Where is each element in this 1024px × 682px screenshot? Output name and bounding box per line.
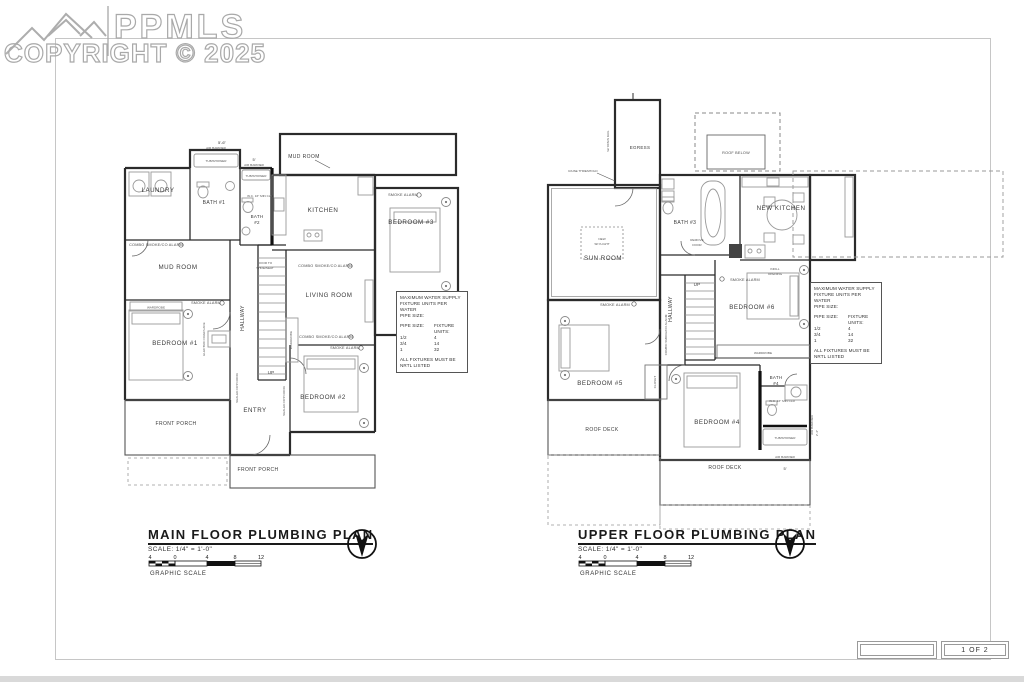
room-label-bedroom3: BEDROOM #3	[388, 219, 434, 226]
alarm-symbols	[632, 277, 724, 306]
main-graphic-scale: 4 0 4 8 12	[148, 554, 268, 569]
smoke-alarm-note: SMOKE ALARM	[191, 301, 221, 305]
svg-text:12: 12	[258, 555, 264, 561]
svg-text:COMBO SMOKE/CO ALARM: COMBO SMOKE/CO ALARM	[298, 264, 352, 268]
combo-alarm-note: COMBO SMOKE/CO ALARM	[664, 314, 668, 355]
room-labels: SUN ROOM EGRESS BATH #3 NEW KITCHEN ROOF…	[577, 145, 805, 471]
svg-text:SMOKE ALARM: SMOKE ALARM	[330, 346, 360, 350]
sealed-door-note: SEALED OPP DOOR	[235, 372, 239, 402]
svg-text:OPENING: OPENING	[768, 272, 783, 276]
plumbing-notes-main: MAXIMUM WATER SUPPLY FIXTURE UNITS PER W…	[396, 291, 468, 373]
mud-room-leader	[315, 160, 330, 168]
plumbing-notes-upper: MAXIMUM WATER SUPPLY FIXTURE UNITS PER W…	[810, 282, 882, 364]
upper-graphic-scale: 4 0 4 8 12	[578, 554, 698, 569]
door-shoe-note: DOOR TO	[258, 261, 273, 265]
air-barrier-note: AIR BARRIER	[206, 146, 227, 150]
bed-bedroom5	[559, 325, 609, 371]
oven	[729, 244, 742, 258]
svg-text:WARDROBE: WARDROBE	[289, 331, 293, 349]
stairs	[685, 283, 715, 354]
porch-dashed	[128, 458, 227, 485]
room-label-deck-left: ROOF DECK	[585, 427, 619, 433]
roof-decks	[548, 400, 810, 529]
room-label-deck-bottom: ROOF DECK	[708, 465, 742, 471]
room-label-mud-top: MUD ROOM	[288, 154, 320, 160]
room-label-porch-bottom: FRONT PORCH	[238, 467, 279, 473]
room-label-kitchen: KITCHEN	[308, 207, 339, 214]
vanity-bath3	[662, 179, 674, 189]
skylight-note: NEW	[598, 237, 605, 241]
svg-text:COMBO SMOKE/CO ALARM: COMBO SMOKE/CO ALARM	[299, 335, 353, 339]
wardrobe-note: WARDROBE	[147, 306, 165, 310]
tub-shower-note: TUB/SHOWER	[775, 436, 797, 440]
room-label-bedroom6: BEDROOM #6	[729, 304, 775, 311]
room-label-bath2: BATH	[251, 214, 264, 219]
dim-bath2: 5'	[253, 157, 256, 162]
room-label-egress: EGRESS	[630, 145, 651, 150]
sheet-number: 1 OF 2	[944, 644, 1006, 656]
main-scale-note: SCALE: 1/4" = 1'-0"	[148, 546, 212, 553]
sheet-number-box: 1 OF 2	[941, 641, 1009, 659]
main-plan-title: MAIN FLOOR PLUMBING PLAN	[148, 527, 373, 545]
combo-alarm-note: COMBO SMOKE/CO ALARM	[129, 243, 183, 247]
room-label-bedroom2: BEDROOM #2	[300, 394, 346, 401]
svg-text:#2: #2	[254, 220, 260, 225]
smoke-alarm-note: SMOKE ALARM	[600, 303, 630, 307]
dim-2-4: 2'-4"	[815, 430, 819, 436]
dim-bath1: 5'-6"	[218, 140, 227, 145]
svg-text:DOOR: DOOR	[692, 243, 702, 247]
page-edge	[0, 676, 1024, 682]
roof-below-area	[695, 113, 1003, 257]
room-label-bedroom5: BEDROOM #5	[577, 380, 623, 387]
remove-door-note: REMOVE	[690, 238, 703, 242]
room-label-hallway: HALLWAY	[668, 296, 674, 322]
bed-bedroom3	[390, 208, 440, 272]
wc-note: W.C. 16" MIN CLR	[247, 194, 273, 198]
raise-threshold-note: RAISE THRESHOLD	[568, 169, 598, 173]
electric-fireplace	[208, 331, 230, 347]
svg-text:12: 12	[688, 555, 694, 561]
room-label-kitchen: NEW KITCHEN	[757, 205, 806, 212]
upper-scale-note: SCALE: 1/4" = 1'-0"	[578, 546, 642, 553]
closet-label: CLOSET	[653, 376, 657, 388]
svg-text:4: 4	[578, 555, 581, 561]
upper-graphic-scale-label: GRAPHIC SCALE	[580, 571, 636, 577]
svg-text:SEALED OPP DOOR: SEALED OPP DOOR	[282, 385, 286, 415]
svg-text:8: 8	[233, 555, 236, 561]
svg-text:4: 4	[148, 555, 151, 561]
toilet-bath3	[663, 202, 673, 214]
kitchen-sink	[767, 178, 779, 186]
room-label-bath1: BATH #1	[203, 200, 226, 206]
svg-text:SKYLIGHT: SKYLIGHT	[594, 242, 609, 246]
exterior-walls	[548, 93, 855, 460]
room-label-bath4: BATH	[770, 375, 783, 380]
title-block-cell	[857, 641, 937, 659]
svg-text:SMOKE ALARM: SMOKE ALARM	[730, 278, 760, 282]
north-arrow-icon	[344, 526, 380, 562]
room-label-bedroom4: BEDROOM #4	[694, 419, 740, 426]
stairs	[258, 258, 286, 374]
main-graphic-scale-label: GRAPHIC SCALE	[150, 571, 206, 577]
fridge	[358, 177, 373, 195]
room-label-bedroom1: BEDROOM #1	[152, 340, 198, 347]
fireplace-note: ELECTRIC FIREPLACE	[202, 322, 206, 355]
sink-bath2	[242, 227, 250, 235]
window-seat	[365, 280, 373, 322]
north-arrow-icon	[772, 526, 808, 562]
kitchen-counter	[742, 177, 808, 187]
toilet-bath2	[243, 202, 253, 213]
roof-below-label: ROOF BELOW	[722, 151, 750, 155]
air-barrier-note: AIR BARRIER	[810, 414, 814, 435]
room-label-laundry: LAUNDRY	[142, 187, 175, 194]
infill-note: INFILL	[770, 267, 780, 271]
room-label-living: LIVING ROOM	[306, 292, 353, 299]
room-labels: LAUNDRY BATH #1 BATH #2 MUD ROOM KITCHEN…	[142, 154, 434, 473]
svg-text:8: 8	[663, 555, 666, 561]
svg-text:0: 0	[603, 555, 606, 561]
svg-text:SHOE/SEAT: SHOE/SEAT	[256, 266, 274, 270]
drawing-sheet: { "watermark": { "brand": "PPMLS", "copy…	[0, 0, 1024, 682]
wc-note: W.C. 16" MIN CLR	[769, 399, 795, 403]
stairs-up-label: UP	[268, 370, 275, 375]
kitchen-sink	[274, 198, 284, 211]
sink-bath1	[226, 182, 235, 191]
svg-text:TUB/SHOWER: TUB/SHOWER	[246, 174, 268, 178]
room-label-mud: MUD ROOM	[158, 264, 197, 271]
svg-text:AIR BARRIER: AIR BARRIER	[775, 455, 796, 459]
stairs-up-label: UP	[694, 282, 701, 287]
room-label-entry: ENTRY	[243, 407, 266, 414]
upper-floor-plan: SUN ROOM EGRESS BATH #3 NEW KITCHEN ROOF…	[545, 93, 1015, 533]
svg-text:4: 4	[635, 555, 638, 561]
tub-shower-note: TUB/SHOWER	[206, 159, 228, 163]
svg-text:#4: #4	[773, 381, 779, 386]
room-label-bath3: BATH #3	[674, 220, 697, 226]
wardrobe-label: WARDROBE	[754, 351, 772, 355]
room-label-hallway: HALLWAY	[240, 305, 246, 331]
toilet-bath1	[198, 186, 208, 198]
open-rail-note: W/ OPEN RAIL	[606, 130, 610, 151]
svg-text:AIR BARRIER: AIR BARRIER	[244, 163, 265, 167]
svg-text:4: 4	[205, 555, 208, 561]
bed-bedroom4	[684, 373, 740, 447]
svg-text:SMOKE ALARM: SMOKE ALARM	[388, 193, 418, 197]
dim-5: 5'	[784, 466, 787, 471]
alarm-symbols	[179, 193, 421, 350]
door-swings	[615, 188, 797, 386]
bed-bedroom2	[304, 356, 358, 412]
room-label-porch-left: FRONT PORCH	[156, 421, 197, 427]
svg-text:0: 0	[173, 555, 176, 561]
toilet-bath4	[768, 405, 777, 416]
room-label-sun: SUN ROOM	[584, 255, 622, 262]
threshold-leader	[597, 173, 615, 181]
